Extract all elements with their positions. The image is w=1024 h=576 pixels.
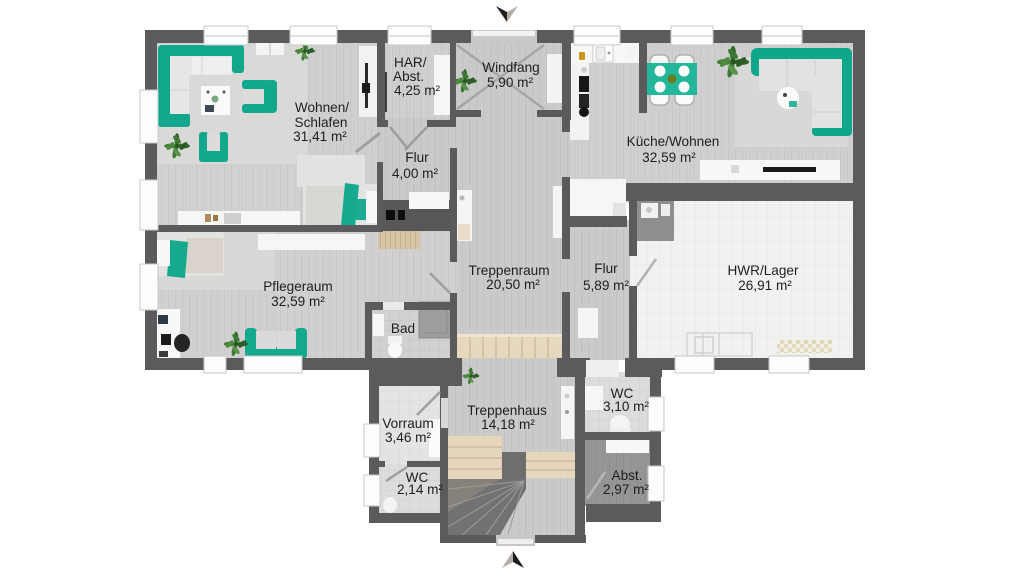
svg-text:32,59 m²: 32,59 m² <box>271 294 325 309</box>
svg-text:HWR/Lager: HWR/Lager <box>727 263 798 278</box>
svg-text:4,00 m²: 4,00 m² <box>392 166 439 181</box>
svg-text:14,18 m²: 14,18 m² <box>481 417 535 432</box>
svg-text:20,50 m²: 20,50 m² <box>486 277 540 292</box>
svg-text:2,97 m²: 2,97 m² <box>603 482 650 497</box>
svg-text:3,46 m²: 3,46 m² <box>385 430 432 445</box>
svg-text:2,14 m²: 2,14 m² <box>397 482 444 497</box>
svg-text:Flur: Flur <box>594 261 618 276</box>
svg-text:26,91 m²: 26,91 m² <box>738 278 792 293</box>
svg-text:Flur: Flur <box>405 150 429 165</box>
svg-text:Bad: Bad <box>391 321 415 336</box>
svg-text:32,59 m²: 32,59 m² <box>642 150 696 165</box>
svg-text:4,25 m²: 4,25 m² <box>394 83 441 98</box>
svg-text:Küche/Wohnen: Küche/Wohnen <box>627 134 720 149</box>
svg-text:Abst.: Abst. <box>612 468 643 483</box>
svg-text:Schlafen: Schlafen <box>295 115 348 130</box>
svg-text:Treppenraum: Treppenraum <box>468 263 549 278</box>
svg-text:Wohnen/: Wohnen/ <box>295 100 349 115</box>
svg-text:5,89 m²: 5,89 m² <box>583 278 630 293</box>
svg-text:31,41 m²: 31,41 m² <box>293 129 347 144</box>
svg-text:Windfang: Windfang <box>482 60 539 75</box>
svg-text:Treppenhaus: Treppenhaus <box>467 403 547 418</box>
svg-text:Vorraum: Vorraum <box>382 416 433 431</box>
svg-text:Abst.: Abst. <box>393 69 424 84</box>
svg-text:3,10 m²: 3,10 m² <box>603 399 650 414</box>
svg-text:Pflegeraum: Pflegeraum <box>263 279 333 294</box>
svg-text:HAR/: HAR/ <box>394 55 427 70</box>
svg-text:5,90 m²: 5,90 m² <box>487 75 534 90</box>
